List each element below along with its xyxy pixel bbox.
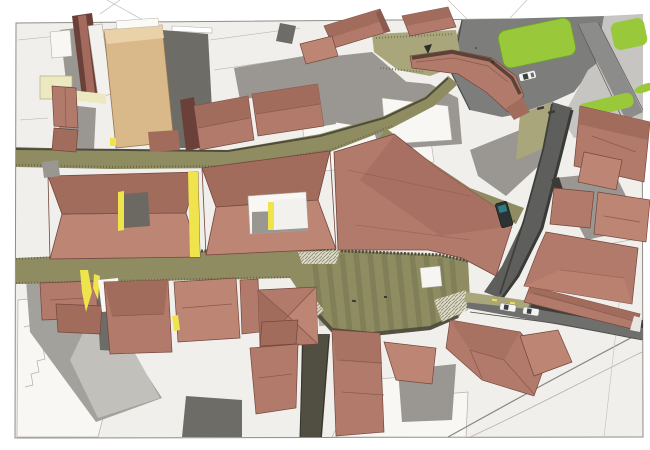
rm-roof-b [594,192,650,242]
guide-line [510,0,527,18]
building-yellow-bit [110,138,116,146]
guide-line [107,0,143,20]
hall-east-yellow-wall [188,172,200,257]
sc-left-roof-upper [260,320,298,346]
hall-dormer-opening [124,192,150,228]
kiosk-white [420,266,442,288]
courtyard-white-house [274,198,308,230]
bl-roof-2-upper [104,280,168,316]
bl-roof-1b [56,304,102,334]
car-street-2-glass [527,308,532,314]
courtyard-yellow-facade [268,202,274,230]
bollard-dot [475,47,477,49]
hatch-margin-nw [298,250,340,264]
site-plan-svg [0,0,650,450]
sc-left-roof [250,344,298,414]
steps-mark [352,300,356,302]
bl-roof-3 [174,278,240,342]
sc-right-strip-shading [332,330,382,364]
building-tan [104,25,174,148]
hall-tower-gray [42,160,60,178]
steps-mark [384,296,387,298]
rendering-canvas [0,0,650,450]
parcel-white-corner [50,30,72,58]
building-red-small-2 [52,128,78,152]
building-red-bit [148,130,180,152]
car-street-1-glass [504,304,509,310]
rm-roof-c [550,188,594,228]
hall-dormer-yellow-wall [118,191,124,231]
shadow-bottom-wedge [182,396,242,437]
bollard-dot [492,61,495,64]
bl-roof-4 [240,279,260,334]
